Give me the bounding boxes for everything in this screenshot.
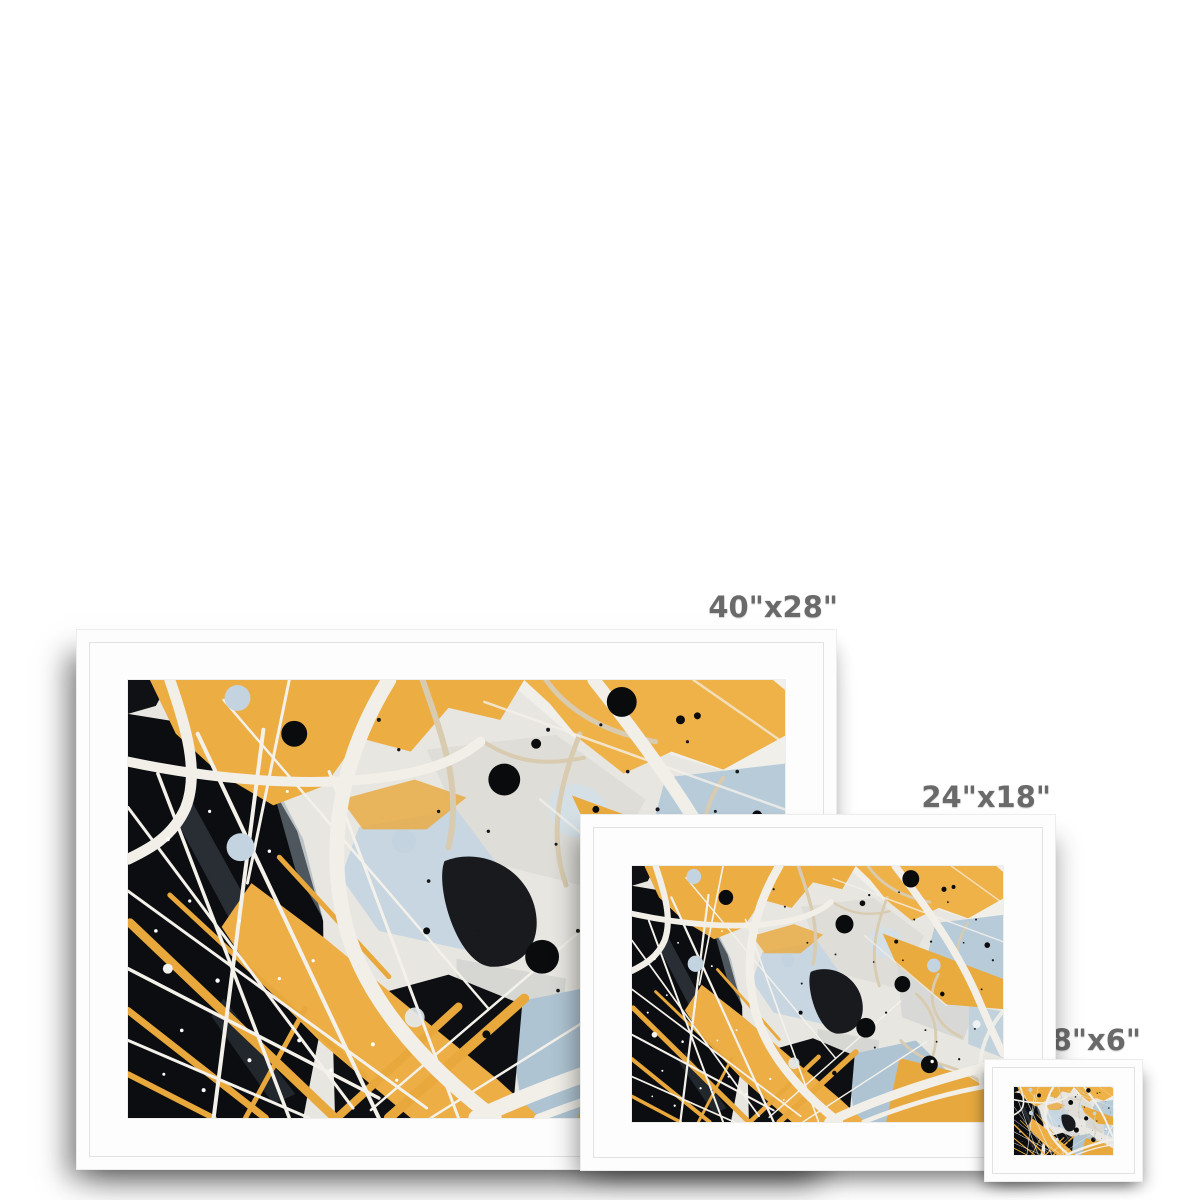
artwork-medium bbox=[632, 866, 1003, 1122]
framed-print-small bbox=[984, 1059, 1143, 1182]
size-label-small: 8"x6" bbox=[1052, 1025, 1141, 1055]
abstract-artwork-icon bbox=[1014, 1087, 1113, 1155]
size-label-large: 40"x28" bbox=[708, 592, 838, 622]
abstract-artwork-icon bbox=[632, 866, 1003, 1122]
artwork-small bbox=[1014, 1087, 1113, 1155]
product-size-mockup: 40"x28" 24"x18" 8"x6" bbox=[0, 0, 1200, 1200]
size-label-medium: 24"x18" bbox=[921, 782, 1051, 812]
